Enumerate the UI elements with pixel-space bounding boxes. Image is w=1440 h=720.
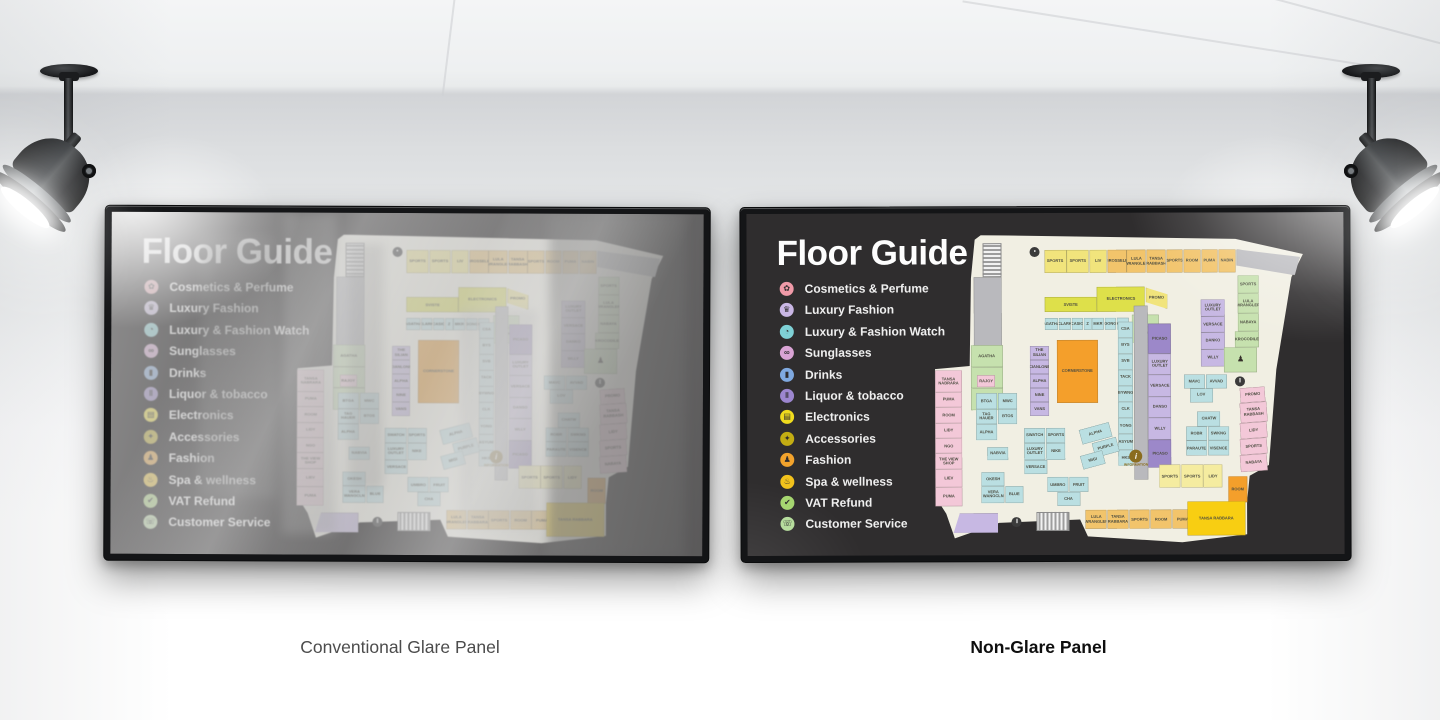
map-block-label: ROOM bbox=[546, 260, 560, 264]
customer-service-icon: ☏ bbox=[143, 515, 157, 529]
legend-label: Spa & wellness bbox=[169, 472, 256, 486]
map-block: ROOM bbox=[1228, 477, 1247, 503]
map-block: ROBR bbox=[1186, 426, 1207, 441]
map-block: TANSA RABBASH bbox=[599, 403, 627, 424]
map-block-label: LUXURY OUTLET bbox=[1201, 303, 1225, 312]
map-block: GONG bbox=[466, 318, 478, 330]
luxury-fashion-watch-icon: ◔ bbox=[144, 323, 158, 337]
map-block-label: SPORTS bbox=[408, 433, 426, 437]
map-block-label: PROMO bbox=[509, 297, 526, 301]
map-block: VANS bbox=[1030, 402, 1049, 416]
map-block: ALPHA bbox=[1030, 374, 1049, 388]
map-block-label: CORNERSTONE bbox=[1061, 369, 1094, 374]
map-block-label: NIKE bbox=[411, 449, 423, 453]
map-block: SPORTS bbox=[1046, 428, 1065, 443]
map-block-label: VERSACE bbox=[1202, 322, 1223, 326]
map-block-label: UMBRO bbox=[410, 483, 427, 487]
map-block: FRUIT bbox=[1069, 477, 1088, 492]
map-block: Z bbox=[445, 318, 453, 330]
map-block-label: ROOM bbox=[941, 413, 955, 417]
map-block: LULA WRANGLER bbox=[1086, 510, 1107, 529]
map-block-label: RAJOY bbox=[978, 379, 994, 383]
map-block: CHA bbox=[1057, 492, 1080, 506]
legend-label: Drinks bbox=[169, 366, 206, 380]
map-block: SPORTS bbox=[489, 511, 510, 530]
map-block: LIEV bbox=[297, 468, 324, 487]
legend-item-electronics: ▤Electronics bbox=[144, 408, 309, 423]
map-block-label: SPORTS bbox=[599, 284, 617, 288]
vat-refund-icon: ✔ bbox=[143, 494, 157, 508]
map-block: PARAUTE bbox=[1186, 441, 1207, 456]
map-block: WLLY bbox=[561, 351, 585, 368]
map-block-label: VERSACE bbox=[386, 465, 407, 469]
map-block: LIDY bbox=[935, 423, 962, 438]
map-block: YONG bbox=[479, 418, 494, 434]
map-block-label: PICASO bbox=[511, 452, 528, 456]
map-block: NGO bbox=[297, 438, 324, 453]
glare-display: Floor Guide ✿Cosmetics & Perfume♛Luxury … bbox=[103, 205, 711, 564]
map-block-label: SPORTS bbox=[603, 445, 622, 451]
map-area: ♟ bbox=[1224, 347, 1257, 372]
map-block-label: NGO bbox=[305, 443, 316, 447]
map-block-label: GONG bbox=[1105, 322, 1117, 326]
map-block: LUXURY OUTLET bbox=[385, 443, 406, 460]
map-block-label: LULA WRANGLER bbox=[598, 301, 619, 310]
map-block-label: NGO bbox=[943, 444, 954, 448]
legend-label: Spa & wellness bbox=[805, 474, 892, 488]
map-block: BROSSELE bbox=[1107, 250, 1126, 273]
legend-label: VAT Refund bbox=[168, 494, 235, 508]
map-block-label: SPORTS bbox=[1183, 474, 1201, 478]
map-block-label: SPORTS bbox=[1161, 474, 1179, 478]
map-block-label: CASIO bbox=[433, 322, 445, 326]
map-area bbox=[345, 243, 364, 277]
map-block: TANSA RABBARA bbox=[1187, 502, 1245, 535]
luxury-fashion-icon: ♛ bbox=[780, 303, 794, 317]
map-block: MKR bbox=[454, 318, 466, 330]
map-area bbox=[954, 513, 998, 533]
map-block: TANSA NABRARA bbox=[935, 371, 962, 393]
map-block-label: PUMA bbox=[303, 494, 317, 498]
electronics-icon: ▤ bbox=[144, 408, 158, 422]
map-block-label: SPORTS bbox=[1239, 282, 1257, 286]
map-block: TAG HAUER bbox=[337, 408, 358, 423]
restroom-icon: ‖ bbox=[595, 378, 605, 388]
legend-item-sunglasses: ∞Sunglasses bbox=[780, 346, 945, 361]
map-block-label: LOV bbox=[556, 394, 566, 398]
map-block-label: KROCODILE bbox=[1235, 337, 1259, 341]
map-block: CLARK bbox=[421, 318, 433, 330]
map-block-label: ROOM bbox=[1185, 259, 1199, 263]
map-block-label: MKR bbox=[1092, 322, 1103, 326]
legend-item-luxury-fashion: ♛Luxury Fashion bbox=[144, 301, 309, 316]
map-block-label: PROMO bbox=[1148, 296, 1165, 300]
map-block-label: AVVAD bbox=[569, 380, 584, 384]
map-block-label: LIV bbox=[1094, 259, 1102, 263]
legend-item-customer-service: ☏Customer Service bbox=[143, 515, 308, 530]
map-block-label: SPORTS bbox=[1046, 259, 1064, 263]
map-block-label: VERSACE bbox=[510, 384, 531, 388]
map-block: MKR bbox=[1092, 318, 1104, 330]
map-block-label: SPORTS bbox=[490, 518, 508, 522]
map-block: WLLY bbox=[509, 419, 532, 441]
map-block-label: LUXURY OUTLET bbox=[562, 305, 586, 314]
map-block-label: SPORTS bbox=[1130, 517, 1148, 521]
map-block-label: CHATW bbox=[1201, 416, 1218, 420]
map-block: SPORTS bbox=[1237, 276, 1258, 294]
map-block-label: DANSO bbox=[1152, 405, 1168, 409]
map-block-label: NABAYA bbox=[1244, 460, 1263, 466]
map-block: VERA WANGCLN bbox=[982, 486, 1005, 503]
map-block-label: LIDY bbox=[1207, 474, 1218, 478]
map-block: PUMA bbox=[935, 488, 962, 507]
map-block-label: DANSO bbox=[512, 406, 528, 410]
map-block: BYS bbox=[1118, 337, 1133, 353]
map-block-label: CLARK bbox=[421, 322, 433, 326]
map-block-label: ALPHA bbox=[1087, 429, 1103, 437]
map-block: CASIO bbox=[1071, 318, 1083, 330]
map-block-label: BROSSELE bbox=[469, 260, 488, 264]
map-block-label: PUMA bbox=[564, 260, 578, 264]
map-block-label: LIDY bbox=[305, 428, 316, 432]
legend-item-luxury-fashion-watch: ◔Luxury & Fashion Watch bbox=[144, 323, 309, 338]
map-block-label: BTGA bbox=[980, 399, 993, 403]
map-block-label: SWKNG bbox=[1210, 431, 1227, 435]
map-block: WLLY bbox=[1148, 418, 1171, 440]
map-block: CORNERSTONE bbox=[1056, 340, 1098, 403]
spotlight-pivot bbox=[1344, 164, 1358, 178]
map-block-label: SVB bbox=[1120, 359, 1130, 363]
map-block: BLUE bbox=[367, 486, 384, 503]
map-block-label: LULA WRANGLER bbox=[1237, 299, 1258, 308]
legend-label: Luxury & Fashion Watch bbox=[169, 323, 309, 338]
map-block: LUXURY OUTLET bbox=[562, 301, 586, 318]
map-block-label: LIDY bbox=[943, 428, 954, 432]
map-block-label: NABIN bbox=[1220, 259, 1235, 263]
map-block-label: NABAYA bbox=[1239, 320, 1257, 324]
map-block-label: TANSA NABRARA bbox=[935, 377, 962, 386]
legend-item-cosmetics-perfume: ✿Cosmetics & Perfume bbox=[144, 280, 309, 295]
map-block-label: ASYUM bbox=[1118, 439, 1133, 443]
map-area bbox=[315, 512, 359, 532]
electronics-icon: ▤ bbox=[780, 410, 794, 424]
map-block: SPORTS bbox=[1129, 510, 1150, 529]
map-landmark-icon: • bbox=[392, 247, 402, 257]
map-block: PUMA bbox=[1201, 249, 1218, 272]
map-block: NABAYA bbox=[1238, 314, 1259, 332]
legend-item-drinks: ▮Drinks bbox=[780, 367, 945, 382]
map-block: VERSACE bbox=[1024, 460, 1047, 475]
map-area: ‖ bbox=[360, 512, 394, 532]
map-block: TANSA RABBASH bbox=[1147, 250, 1166, 273]
map-block-label: CLARK bbox=[1059, 322, 1071, 326]
map-block-label: MKR bbox=[454, 322, 465, 326]
map-block-label: CSA bbox=[481, 328, 491, 332]
map-block-label: YONG bbox=[479, 424, 493, 428]
map-block-label: VISENCE bbox=[568, 447, 588, 451]
legend-item-electronics: ▤Electronics bbox=[780, 410, 945, 425]
map-block: ALPHA bbox=[337, 424, 358, 439]
map-block: SPORTS bbox=[1159, 465, 1181, 488]
map-block-label: SPORTS bbox=[1166, 259, 1183, 263]
legend-label: Fashion bbox=[805, 453, 851, 467]
map-block-label: UMBRO bbox=[1049, 483, 1066, 487]
map-block-label: VERSACE bbox=[1025, 465, 1046, 469]
legend-item-fashion: ♟Fashion bbox=[780, 452, 945, 467]
map-block-label: TAG HAUER bbox=[976, 412, 998, 421]
map-block: UMBRO bbox=[1047, 477, 1068, 492]
map-block: PICASO bbox=[509, 325, 532, 355]
map-block: SPORTS bbox=[519, 466, 541, 489]
map-block-label: CLK bbox=[1121, 407, 1131, 411]
caption-non-glare-panel: Non-Glare Panel bbox=[740, 637, 1337, 658]
map-block: iINFORMATION bbox=[1123, 444, 1148, 472]
non-glare-display: Floor Guide ✿Cosmetics & Perfume♛Luxury … bbox=[739, 205, 1351, 563]
legend-item-vat-refund: ✔VAT Refund bbox=[143, 494, 308, 509]
map-block-label: OKESH bbox=[346, 476, 362, 480]
map-block: KROCODILE bbox=[1235, 331, 1259, 347]
map-block-label: LUXURY OUTLET bbox=[1024, 447, 1046, 456]
map-block: LULA WRANGLER bbox=[489, 250, 508, 273]
map-block: SVB bbox=[479, 354, 494, 370]
map-block: AVVAD bbox=[1206, 374, 1227, 388]
map-block-label: BTOS bbox=[1001, 414, 1014, 418]
map-block-label: MAVC bbox=[548, 380, 562, 384]
map-area: ‖ bbox=[594, 377, 606, 389]
map-block-label: TANSA NABRARA bbox=[297, 376, 324, 385]
map-block-label: LIEV bbox=[943, 476, 954, 480]
map-block-label: TANSA RABBARA bbox=[1198, 516, 1235, 521]
map-block-label: YONG bbox=[1119, 423, 1133, 427]
map-block-label: AGATHA bbox=[339, 353, 358, 357]
map-block-label: CLK bbox=[481, 408, 491, 412]
map-block: MWC bbox=[998, 393, 1017, 408]
map-block: SPORTS bbox=[429, 250, 451, 273]
map-block-label: RAJOY bbox=[340, 378, 356, 382]
map-block: iINFORMATION bbox=[484, 445, 509, 473]
map-block-label: SVISTE bbox=[1063, 302, 1079, 306]
legend-item-fashion: ♟Fashion bbox=[144, 451, 309, 466]
map-block-label: NINE bbox=[395, 393, 407, 397]
map-block: TANSA RABBARA bbox=[1107, 510, 1128, 529]
map-block-label: SPORTS bbox=[520, 475, 538, 479]
map-block: NABIN bbox=[579, 251, 596, 274]
map-block-label: LULA WRANGLER bbox=[446, 516, 467, 525]
map-block-label: NABVIA bbox=[989, 451, 1006, 455]
map-block-label: BTOS bbox=[363, 414, 376, 418]
map-landmark-icon: • bbox=[1030, 247, 1040, 257]
map-block: PICASO bbox=[509, 440, 532, 468]
map-block: SVISTE bbox=[406, 297, 458, 313]
map-block-label: VANS bbox=[1033, 407, 1046, 411]
map-block: VERSACE bbox=[509, 376, 532, 398]
map-block: TANSA RABBARA bbox=[467, 511, 488, 530]
legend-label: Liquor & tobacco bbox=[805, 388, 904, 402]
map-block-label: KROCODILE bbox=[595, 339, 619, 344]
map-block-label: ASYUM bbox=[478, 440, 493, 444]
map-block: LIDY bbox=[563, 466, 581, 489]
map-block-label: CHA bbox=[424, 497, 435, 501]
map-block-label: BYS bbox=[481, 344, 491, 348]
map-block-label: ALPHA bbox=[979, 430, 995, 434]
map-block-label: CIANLONE bbox=[392, 365, 410, 369]
map-block-label: ELECTRONICS bbox=[467, 298, 498, 303]
map-block-label: THE VIEW SHOP bbox=[297, 456, 324, 465]
map-block: ROOM bbox=[1184, 249, 1201, 272]
map-block-label: AVVAD bbox=[1209, 379, 1224, 383]
restroom-icon: ‖ bbox=[1012, 517, 1022, 527]
map-block: SPORTS bbox=[528, 250, 545, 273]
map-block-label: ROOM bbox=[513, 518, 527, 522]
map-block-label: ROOM bbox=[1231, 487, 1245, 491]
map-block: DANSO bbox=[1148, 396, 1171, 418]
restroom-icon: ‖ bbox=[373, 517, 383, 527]
map-block: SPORTS bbox=[598, 277, 619, 295]
map-block-label: TACK bbox=[1119, 375, 1132, 379]
legend-label: Sunglasses bbox=[169, 344, 236, 358]
map-block: DANKO bbox=[561, 334, 585, 351]
map-block: MWC bbox=[360, 393, 379, 408]
information-icon: i bbox=[490, 450, 503, 463]
map-block-label: MAVC bbox=[1188, 379, 1201, 383]
map-block-label: NABAYA bbox=[603, 461, 622, 467]
map-block: NABAYA bbox=[599, 455, 627, 474]
map-block-label: BLUE bbox=[1008, 492, 1021, 496]
map-block: ROOM bbox=[545, 251, 562, 274]
map-block-label: SVISTE bbox=[424, 303, 440, 307]
map-block: YONG bbox=[1118, 417, 1133, 433]
map-block: CASIO bbox=[433, 318, 445, 330]
map-block: THE VIEW SHOP bbox=[935, 454, 962, 469]
map-block: SPORTS bbox=[1067, 250, 1089, 273]
map-block: THE VIEW SHOP bbox=[297, 453, 324, 468]
map-block-label: GONG bbox=[466, 322, 478, 326]
caption-glare-panel: Conventional Glare Panel bbox=[104, 637, 696, 658]
map-block: BTGA bbox=[976, 394, 998, 409]
map-block: NIKE bbox=[1046, 443, 1065, 460]
map-block: SWATCH bbox=[1024, 428, 1046, 443]
map-block: LIDY bbox=[1239, 421, 1267, 439]
restroom-icon: ‖ bbox=[1235, 376, 1245, 386]
map-block: LIV bbox=[452, 250, 469, 273]
liquor-tobacco-icon: ‖ bbox=[780, 389, 794, 403]
legend-label: Cosmetics & Perfume bbox=[169, 280, 293, 295]
map-block: LIDY bbox=[1204, 464, 1223, 487]
map-block: TANSA RABBASH bbox=[1239, 401, 1267, 423]
map-block: SPORTS bbox=[407, 250, 429, 273]
map-area bbox=[397, 512, 430, 531]
map-block-label: DANKO bbox=[1205, 339, 1222, 343]
map-block: BYWNG bbox=[479, 386, 494, 402]
map-area: ♟ bbox=[584, 349, 617, 374]
map-block: BYS bbox=[479, 338, 494, 354]
map-block-label: SPORTS bbox=[528, 260, 545, 264]
map-block-label: SVB bbox=[481, 360, 491, 364]
glare-screen: Floor Guide ✿Cosmetics & Perfume♛Luxury … bbox=[110, 212, 703, 557]
map-block-label: PICASO bbox=[1151, 336, 1168, 340]
map-block: BYWNG bbox=[1118, 385, 1133, 401]
map-block-label: ALPHA bbox=[1032, 379, 1048, 383]
map-block: LIV bbox=[1090, 250, 1107, 273]
map-block-label: VERSACE bbox=[1149, 383, 1170, 387]
legend-label: VAT Refund bbox=[805, 496, 872, 510]
map-block: MAVC bbox=[544, 376, 565, 390]
map-block-label: THE VIEW SHOP bbox=[935, 457, 962, 466]
map-block: DANSO bbox=[509, 397, 532, 419]
legend-label: Luxury Fashion bbox=[805, 303, 894, 317]
map-block: LUXURY OUTLET bbox=[1024, 443, 1046, 460]
map-block: LULA WRANGLER bbox=[1127, 250, 1146, 273]
map-block: VISENCE bbox=[1208, 441, 1229, 456]
map-block: GONG bbox=[1105, 318, 1117, 330]
legend-item-accessories: ✦Accessories bbox=[780, 431, 945, 446]
map-block-label: SWKNG bbox=[569, 433, 586, 437]
map-block-label: VERA WANGCLN bbox=[343, 490, 366, 499]
map-block: NINE bbox=[392, 388, 410, 402]
map-block-label: CSA bbox=[1120, 327, 1130, 331]
legend-label: Luxury & Fashion Watch bbox=[805, 324, 945, 338]
map-block: VERSACE bbox=[562, 317, 586, 334]
map-block: LIDY bbox=[297, 422, 324, 437]
accessories-icon: ✦ bbox=[144, 430, 158, 444]
map-block-label: PARAUTE bbox=[1186, 446, 1207, 450]
map-block: LIDY bbox=[599, 423, 627, 441]
map-block-label: LUXURY OUTLET bbox=[1148, 360, 1171, 369]
map-block: WLLY bbox=[1201, 349, 1225, 366]
legend-item-accessories: ✦Accessories bbox=[144, 430, 309, 445]
map-block-label: MWC bbox=[1002, 399, 1014, 403]
map-block: AGATHA bbox=[1044, 318, 1058, 330]
map-block-label: LIDY bbox=[567, 475, 578, 479]
sunglasses-icon: ∞ bbox=[780, 346, 794, 360]
legend-label: Customer Service bbox=[805, 517, 907, 531]
legend-item-cosmetics-perfume: ✿Cosmetics & Perfume bbox=[780, 281, 945, 296]
map-block: OKESH bbox=[343, 472, 366, 486]
map-block: PICASO bbox=[1149, 439, 1172, 467]
vat-refund-icon: ✔ bbox=[780, 496, 794, 510]
map-block: OKESH bbox=[982, 472, 1005, 486]
map-block: TACK bbox=[479, 370, 494, 386]
map-block: SPORTS bbox=[1239, 437, 1267, 455]
map-block: PUMA bbox=[935, 392, 962, 407]
map-block-label: FRUIT bbox=[1072, 482, 1086, 486]
map-block: THE SILIAN bbox=[1030, 346, 1049, 360]
map-block: THE SILIAN bbox=[392, 346, 410, 360]
map-block: PROMO bbox=[599, 388, 625, 404]
map-block: TANSA RABBARA bbox=[547, 503, 605, 536]
map-block-label: ALPHA bbox=[448, 429, 464, 437]
map-block: NABVIA bbox=[349, 446, 370, 460]
map-block-label: TANSA RABBASH bbox=[508, 258, 527, 267]
legend-item-liquor-tobacco: ‖Liquor & tobacco bbox=[144, 387, 309, 402]
customer-service-map-icon: ♟ bbox=[597, 357, 604, 365]
map-block-label: Z bbox=[1085, 322, 1089, 326]
map-block-label: SPORTS bbox=[431, 260, 449, 264]
map-block: VERSACE bbox=[1201, 316, 1225, 333]
map-block-label: LIDY bbox=[607, 429, 618, 434]
luxury-fashion-icon: ♛ bbox=[144, 301, 158, 315]
map-block: LUXURY OUTLET bbox=[1201, 299, 1225, 316]
map-block-label: TANSA RABBASH bbox=[1147, 257, 1166, 266]
map-block-label: MIGI bbox=[447, 456, 458, 463]
map-block-label: TACK bbox=[480, 376, 493, 380]
legend-label: Luxury Fashion bbox=[169, 301, 258, 315]
map-block: PUMA bbox=[297, 391, 324, 406]
map-area bbox=[982, 243, 1001, 277]
map-block: FRUIT bbox=[430, 478, 449, 493]
map-block: SWKNG bbox=[568, 427, 589, 442]
legend-item-luxury-fashion: ♛Luxury Fashion bbox=[780, 303, 945, 318]
